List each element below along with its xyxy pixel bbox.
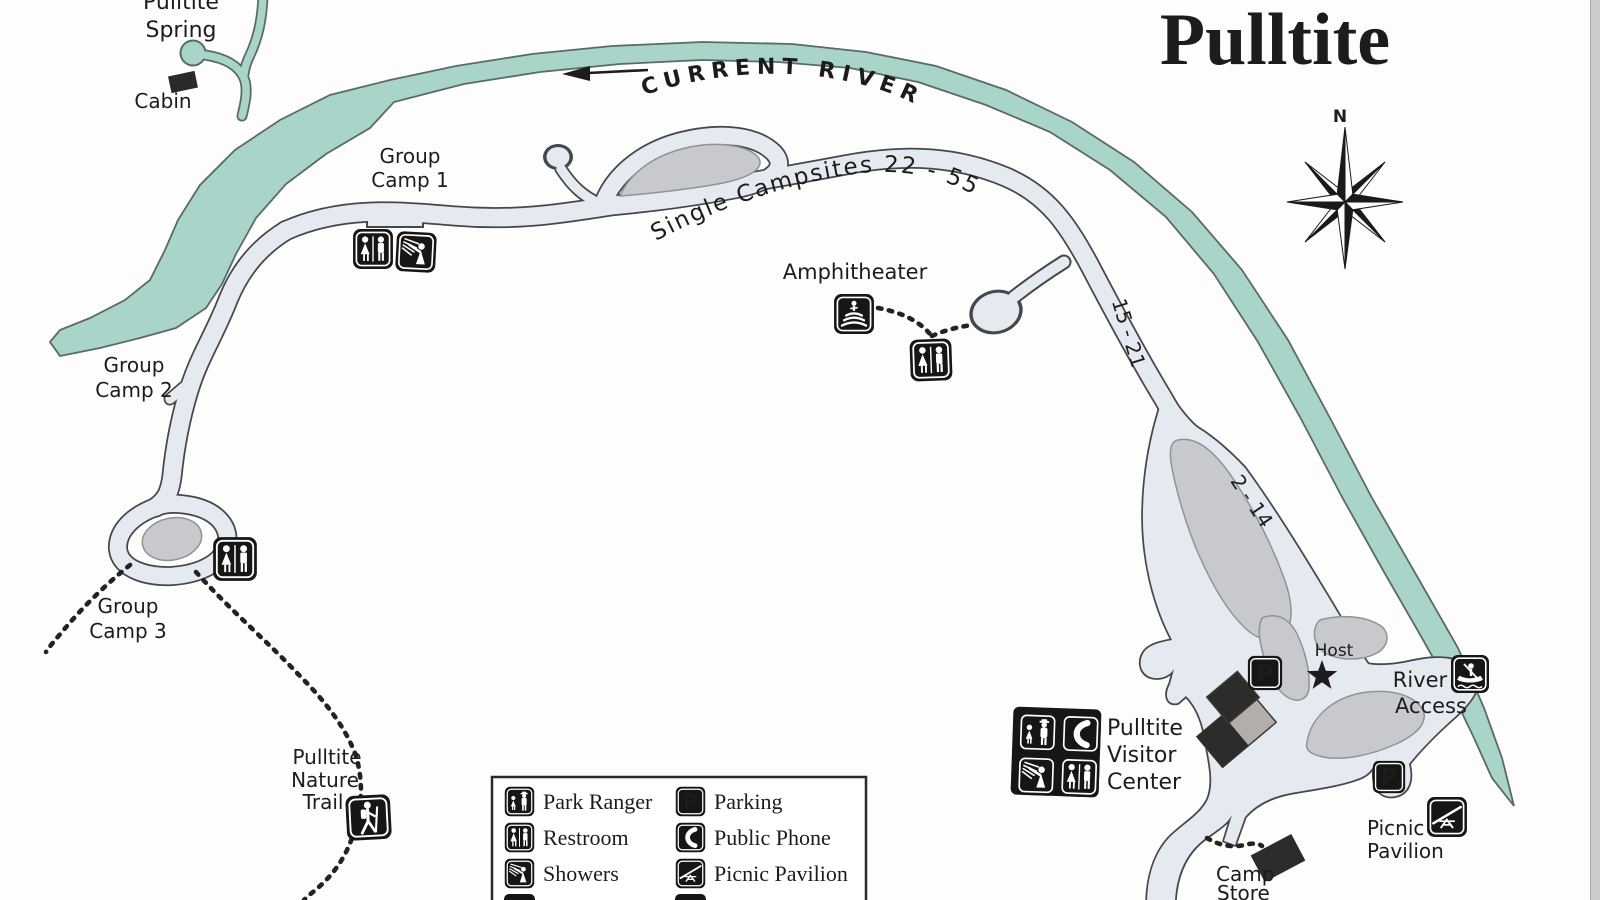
pulltite-map-page: P xyxy=(0,0,1600,900)
picnic-pavilion-label-1: Picnic xyxy=(1367,816,1424,840)
group-camp-3-label-1: Group xyxy=(98,594,159,618)
legend: Park Ranger Restroom Showers Parking Pub… xyxy=(492,777,866,900)
showers-icon xyxy=(395,231,437,273)
hiker-icon xyxy=(345,794,392,841)
public-phone-icon xyxy=(676,823,705,852)
trail-nature xyxy=(196,572,361,900)
legend-label: Public Phone xyxy=(714,825,831,850)
legend-cutoff-icon xyxy=(504,894,535,900)
park-ranger-icon xyxy=(1017,712,1058,753)
nature-trail-label-2: Nature xyxy=(291,768,359,792)
legend-label: Picnic Pavilion xyxy=(714,861,848,886)
visitor-center-icon-panel xyxy=(1010,706,1101,797)
picnic-pavilion-icon xyxy=(676,859,705,888)
public-phone-icon xyxy=(1060,713,1101,754)
visitor-center-label-3: Center xyxy=(1107,770,1182,795)
parking-icon xyxy=(676,787,705,816)
legend-label: Parking xyxy=(714,789,782,814)
visitor-center-label-1: Pulltite xyxy=(1107,716,1183,741)
map-svg: P xyxy=(0,0,1600,900)
amphitheater-icon xyxy=(834,294,874,334)
visitor-center-label-2: Visitor xyxy=(1107,743,1177,768)
legend-label: Restroom xyxy=(543,825,629,850)
sites-15-21-label: 15 - 21 xyxy=(1107,296,1151,371)
page-title: Pulltite xyxy=(1160,0,1390,81)
nature-trail-label-3: Trail xyxy=(302,790,344,814)
spring-label-2: Spring xyxy=(146,18,217,43)
cabin-label: Cabin xyxy=(134,89,191,113)
group-camp-1-label-1: Group xyxy=(380,144,441,168)
legend-label: Park Ranger xyxy=(543,789,653,814)
showers-icon xyxy=(1016,755,1057,796)
parking-icon xyxy=(1373,761,1405,793)
restroom-icon xyxy=(505,823,534,852)
restroom-icon xyxy=(213,537,257,581)
restroom-icon xyxy=(909,338,952,381)
restroom-icon xyxy=(1059,756,1100,797)
river-access-label-1: River xyxy=(1393,668,1448,692)
host-label: Host xyxy=(1315,641,1354,661)
spring-label-1: Pulltite xyxy=(143,0,219,15)
nature-trail-label-1: Pulltite xyxy=(292,745,361,769)
camp-store-label-2: Store xyxy=(1217,881,1270,900)
page-scan-edge xyxy=(1591,0,1600,900)
legend-cutoff-icon xyxy=(675,894,706,900)
trail-amphitheater-2 xyxy=(932,325,972,336)
legend-label: Showers xyxy=(543,861,619,886)
group-camp-3-label-2: Camp 3 xyxy=(89,619,166,643)
river-access-canoe-icon xyxy=(1451,655,1489,693)
trail-amphitheater xyxy=(878,308,930,334)
parking-icon xyxy=(1248,656,1282,690)
group-camp-2-label-1: Group xyxy=(104,353,165,377)
group-camp-1-label-2: Camp 1 xyxy=(371,168,448,192)
park-ranger-icon xyxy=(505,787,534,816)
restroom-icon xyxy=(353,229,393,269)
compass-north-label: N xyxy=(1333,107,1347,127)
compass-rose-icon: N xyxy=(1287,107,1403,269)
picnic-pavilion-icon xyxy=(1427,797,1467,837)
river-access-label-2: Access xyxy=(1395,694,1467,718)
group-camp-2-label-2: Camp 2 xyxy=(95,378,172,402)
picnic-pavilion-label-2: Pavilion xyxy=(1367,839,1444,863)
amphitheater-label: Amphitheater xyxy=(783,260,928,284)
showers-icon xyxy=(505,859,534,888)
